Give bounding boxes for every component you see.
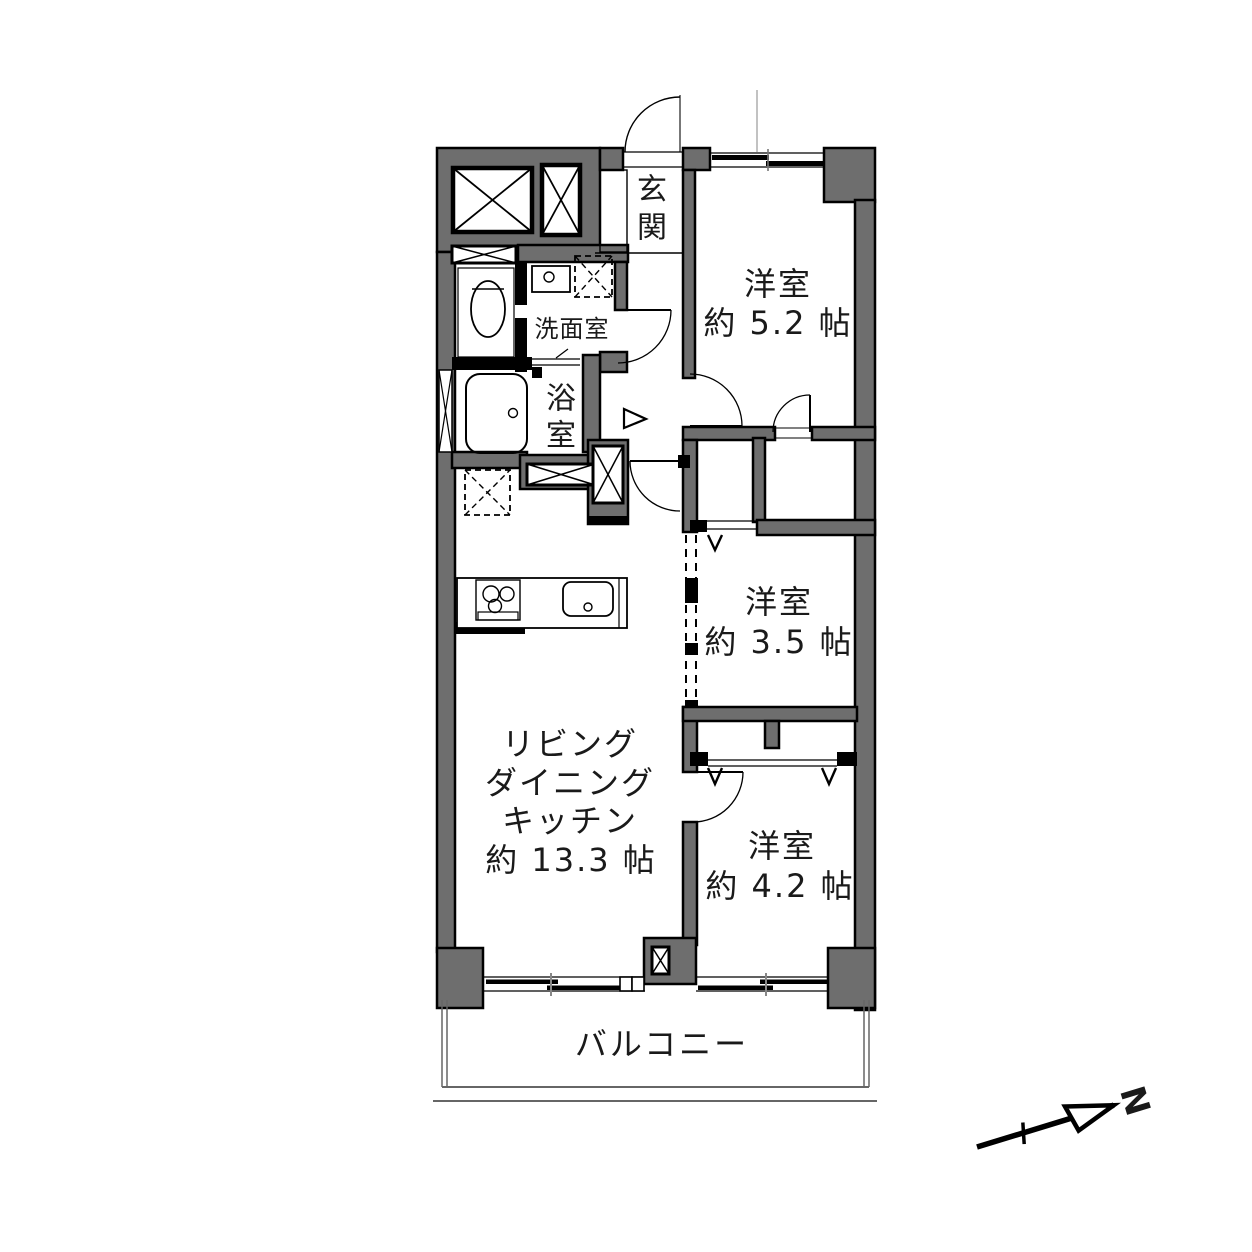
entrance-label-char2: 関 [637,211,667,246]
floor-plan-page: 玄 関 洋室 約 5.2 帖 洗面室 浴 室 洋室 約 3.5 帖 リビング ダ… [0,0,1252,1252]
bedroom3-label: 洋室 約 4.2 帖 [705,827,854,905]
window-bottom-bedroom3 [696,973,828,996]
bedroom1-size: 約 5.2 帖 [703,304,852,342]
window-top [710,149,824,171]
balcony-name: バルコニー [575,1025,749,1063]
pipe-space-icon [593,446,623,503]
entrance-area [595,90,757,253]
balcony-label: バルコニー [575,1025,749,1063]
window-pane [698,986,773,991]
wall-bath-bottom [452,452,527,468]
bedroom1-name: 洋室 [744,265,812,303]
north-label: N [1111,1082,1158,1121]
bedroom1-label: 洋室 約 5.2 帖 [703,265,852,342]
bathroom-fixtures [466,374,527,453]
pipe-space-bottom-icon [652,947,669,974]
washroom-label: 洗面室 [535,315,610,343]
window-end-frame [632,977,644,991]
bathroom-label-char2: 室 [546,419,576,454]
shoe-cabinet-icon [600,170,627,252]
wall-bath-top [452,357,532,370]
ldk-line1: リビング [502,725,638,763]
wall-closetrow-stub-right [837,752,857,766]
wall-wic-bottom [757,520,875,535]
entrance-label: 玄 関 [637,173,667,246]
wall-closetrow-top [683,707,857,721]
ldk-line2: ダイニング [485,764,655,802]
duct-left-icon [439,370,452,452]
bedroom3-name: 洋室 [748,827,816,865]
ldk-label: リビング ダイニング キッチン 約 13.3 帖 [485,725,657,879]
wall-closet35-left [683,440,697,532]
bedroom2-name: 洋室 [745,583,813,621]
wall-hall-bedroom1 [683,170,695,378]
ldk-line3: キッチン [502,802,638,840]
label-leader-line [556,349,568,358]
bathroom-label-char1: 浴 [546,382,576,417]
folding-door-mark [708,768,722,784]
folding-door-mark [822,768,836,784]
shaft-box-narrow-icon [542,165,580,235]
wall-closetrow-stub-left [690,752,708,766]
ldk-size: 約 13.3 帖 [485,841,657,879]
wall-washroom-hall-lower [600,352,627,372]
sliding-partition [686,535,696,707]
wall-closetrow-stub [765,721,779,748]
wall-ldk-bedroom3-lower [683,822,697,945]
xband-icon [527,464,595,485]
bathroom-label: 浴 室 [546,382,576,454]
bathtub-icon [466,374,527,453]
wic-door-icon [773,395,812,438]
window-pane [766,161,824,166]
window-pane [486,980,558,985]
entrance-label-char1: 玄 [637,173,667,208]
wall-bath-hook [532,367,542,378]
wall-top-hall-right [683,148,710,170]
wall-pillar-bottomright [828,948,875,1008]
window-bottom-ldk [483,973,645,996]
window-pane [547,986,620,991]
folding-door-mark [708,535,722,550]
window-end-frame [620,977,632,991]
wall-bedroom1-bottom-right [812,427,875,440]
wall-bath-right [583,355,600,452]
vanity-sink-icon [532,266,570,292]
bedroom2-size: 約 3.5 帖 [704,623,853,661]
toilet-icon [471,281,505,337]
wall-top-shoebox [600,148,623,170]
entrance-door-arc-icon [625,97,680,152]
bath-door-track [532,359,580,365]
toilet-room [458,268,514,357]
washroom-name: 洗面室 [535,315,610,343]
shelf-x-icon [452,246,516,263]
bedroom2-label: 洋室 約 3.5 帖 [704,583,853,661]
wall-closet35-bottom-stub [690,520,707,532]
wall-wic-left [753,438,765,522]
floor-plan: 玄 関 洋室 約 5.2 帖 洗面室 浴 室 洋室 約 3.5 帖 リビング ダ… [0,0,1252,1252]
shaft-box-large-icon [453,168,532,232]
corridor-door-icon [630,461,680,511]
wall-hall-bottom-edge [588,516,628,524]
wall-pillar-bottomleft [437,948,483,1008]
wall-toilet-right-a [515,262,527,305]
north-compass-icon: N [973,1081,1158,1163]
window-pane [712,155,769,160]
bedroom3-size: 約 4.2 帖 [705,867,854,905]
refrigerator-space-icon [465,470,510,515]
window-pane [760,980,828,985]
bedroom1-door-icon [690,374,742,426]
wall-right [855,200,875,1010]
wall-pillar-topright [824,148,875,202]
entry-direction-icon [624,409,646,428]
wall-washroom-hall-upper [615,262,627,310]
